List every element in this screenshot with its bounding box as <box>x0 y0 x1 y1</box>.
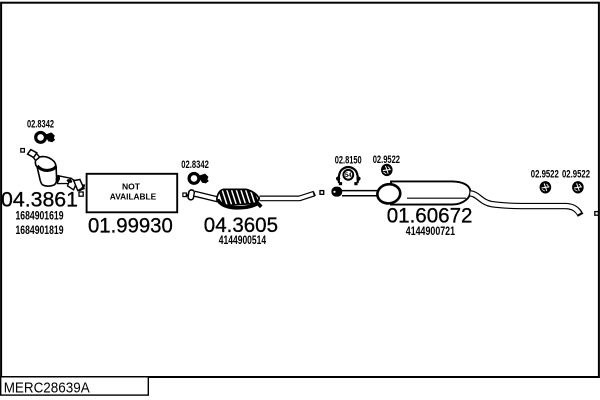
svg-text:02.9522: 02.9522 <box>562 169 590 181</box>
svg-text:04.3861: 04.3861 <box>1 189 78 212</box>
svg-text:1684901619: 1684901619 <box>16 210 64 223</box>
svg-text:54: 54 <box>345 172 352 179</box>
svg-text:02.8150: 02.8150 <box>335 155 362 167</box>
svg-text:02.9522: 02.9522 <box>531 169 559 181</box>
svg-text:1684901819: 1684901819 <box>16 224 64 237</box>
svg-text:4144900721: 4144900721 <box>406 225 456 238</box>
svg-text:01.99930: 01.99930 <box>88 215 173 238</box>
svg-text:MERC28639A: MERC28639A <box>4 381 90 397</box>
svg-text:02.8342: 02.8342 <box>27 118 54 130</box>
svg-text:NOT: NOT <box>122 182 141 192</box>
svg-text:02.8342: 02.8342 <box>181 159 209 171</box>
svg-text:4144900514: 4144900514 <box>219 234 267 247</box>
svg-text:AVAILABLE: AVAILABLE <box>110 192 157 202</box>
